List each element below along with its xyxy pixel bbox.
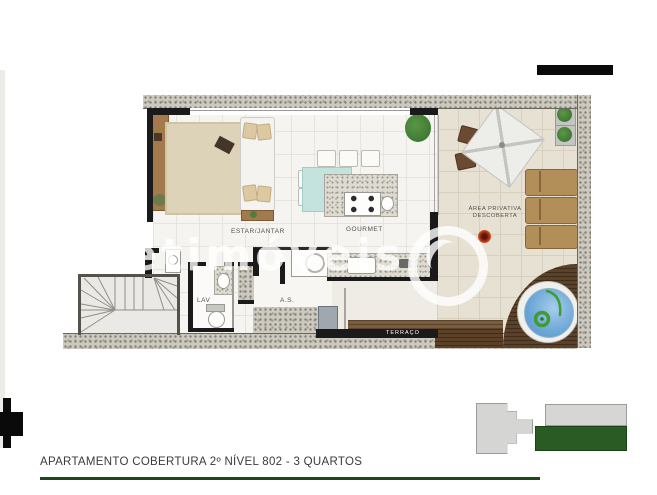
wall-black-top-right xyxy=(410,108,438,115)
terrace-parapet: TERRAÇO xyxy=(316,329,438,338)
stairs xyxy=(78,274,180,336)
footer-rule xyxy=(40,477,540,480)
toilet-bowl xyxy=(208,311,225,328)
island-sink xyxy=(381,196,394,211)
area-privativa-label: ÁREA PRIVATIVA DESCOBERTA xyxy=(453,206,537,219)
crop-cross-icon-bar xyxy=(0,412,23,436)
sideboard-object xyxy=(154,133,162,141)
site-key-block xyxy=(545,404,627,426)
wall-top xyxy=(143,95,590,109)
window-front xyxy=(190,108,410,115)
lounger-crease xyxy=(539,171,541,192)
lounger-crease xyxy=(539,199,541,220)
sofa-pillow xyxy=(256,185,272,202)
plant-large xyxy=(405,114,431,142)
deck-band xyxy=(435,329,503,348)
logo-bar xyxy=(537,65,613,75)
terrace-glass-line xyxy=(344,288,346,332)
sofa-pillow xyxy=(256,123,272,141)
wall-stairs-right xyxy=(177,277,180,335)
floorplan-page: TERRAÇO ESTAR/JANTAR GOURMET LAV A.S. ÁR… xyxy=(0,0,657,495)
wall-lav-bottom xyxy=(188,328,234,332)
planter-bush xyxy=(557,127,572,142)
page-edge xyxy=(0,70,5,448)
sun-lounger xyxy=(525,225,578,249)
area-privativa-line1: ÁREA PRIVATIVA xyxy=(453,206,537,213)
glass-partition xyxy=(434,115,439,215)
site-key-building xyxy=(477,404,532,453)
dining-chair xyxy=(339,150,358,167)
wall-stairs-left xyxy=(78,274,81,335)
umbrella-pole xyxy=(499,142,505,148)
shaft-wall-bottom xyxy=(238,300,254,304)
as-label: A.S. xyxy=(280,297,294,304)
wall-left xyxy=(147,108,153,222)
dining-chair xyxy=(361,150,380,167)
dining-chair xyxy=(317,150,336,167)
wall-black-top-left xyxy=(147,108,190,115)
cooktop xyxy=(344,192,381,216)
laundry-tank xyxy=(318,306,338,330)
lav-label: LAV xyxy=(197,297,210,304)
terraco-label: TERRAÇO xyxy=(386,330,420,336)
lounger-crease xyxy=(539,227,541,245)
console-plant xyxy=(250,211,257,218)
console-table xyxy=(241,210,274,221)
watermark-text: netimóveis xyxy=(92,230,405,281)
wall-right xyxy=(577,95,591,348)
rug xyxy=(165,122,243,215)
planter-bush xyxy=(557,107,572,122)
sun-lounger xyxy=(525,169,578,196)
area-privativa-line2: DESCOBERTA xyxy=(453,213,537,220)
plan-caption: APARTAMENTO COBERTURA 2º NÍVEL 802 - 3 Q… xyxy=(40,456,362,468)
pool-ornament xyxy=(517,281,577,341)
site-key-highlight xyxy=(535,426,627,451)
deck-step xyxy=(348,320,503,329)
